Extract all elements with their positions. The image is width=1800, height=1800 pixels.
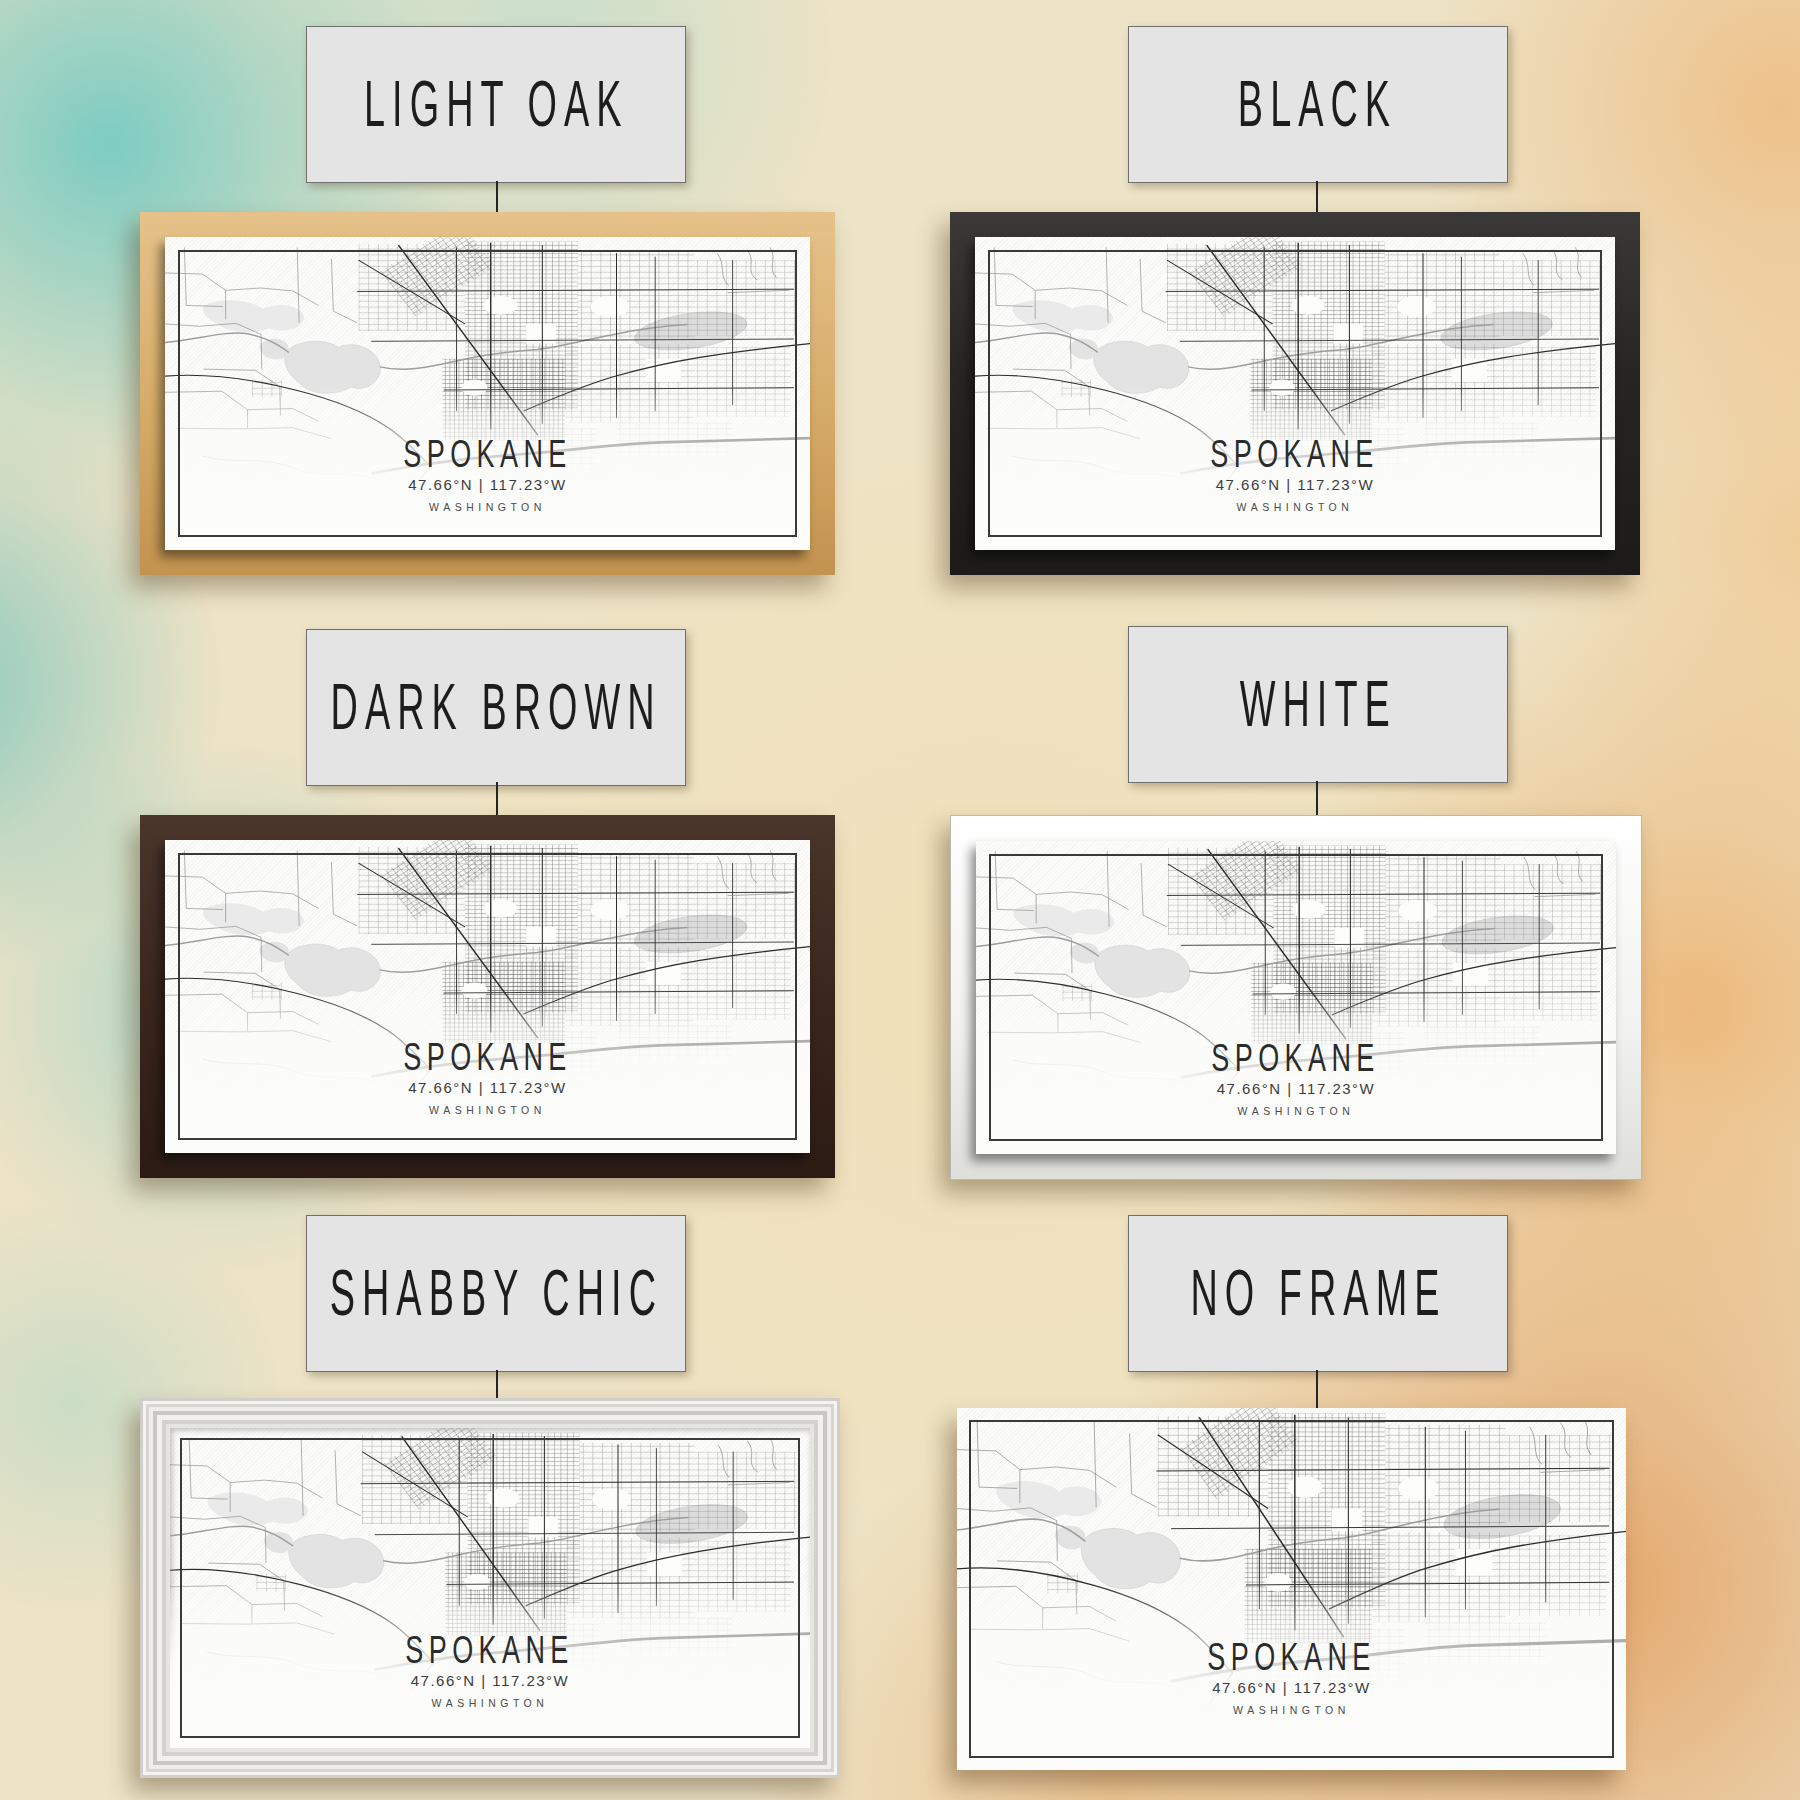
city-name: SPOKANE (403, 1036, 571, 1080)
map-canvas: SPOKANE 47.66°N | 117.23°W WASHINGTON (957, 1408, 1626, 1770)
map-canvas: SPOKANE 47.66°N | 117.23°W WASHINGTON (165, 840, 810, 1153)
connector-line (1316, 1370, 1318, 1408)
unframed-print: SPOKANE 47.66°N | 117.23°W WASHINGTON (957, 1408, 1626, 1770)
connector-line (1316, 781, 1318, 815)
framed-print-shabby-chic: SPOKANE 47.66°N | 117.23°W WASHINGTON (140, 1398, 840, 1778)
option-label-text: NO FRAME (1190, 1257, 1446, 1331)
state-name: WASHINGTON (975, 501, 1615, 513)
city-name: SPOKANE (1207, 1635, 1375, 1679)
city-coordinates: 47.66°N | 117.23°W (976, 1080, 1616, 1097)
option-label-black: BLACK (1128, 26, 1508, 183)
city-name: SPOKANE (1211, 433, 1379, 477)
city-name: SPOKANE (403, 433, 571, 477)
connector-line (496, 181, 498, 212)
option-label-no-frame: NO FRAME (1128, 1215, 1508, 1372)
map-caption: SPOKANE 47.66°N | 117.23°W WASHINGTON (165, 1040, 810, 1116)
option-label-text: LIGHT OAK (364, 68, 629, 142)
watercolor-wall: LIGHT OAK SPOKANE 47.66°N | 117.23°W WAS… (0, 0, 1800, 1800)
map-caption: SPOKANE 47.66°N | 117.23°W WASHINGTON (957, 1640, 1626, 1716)
city-map-image (957, 1408, 1626, 1770)
option-label-text: SHABBY CHIC (329, 1257, 662, 1331)
option-label-text: WHITE (1239, 668, 1396, 742)
map-caption: SPOKANE 47.66°N | 117.23°W WASHINGTON (165, 437, 810, 513)
city-coordinates: 47.66°N | 117.23°W (165, 476, 810, 493)
connector-line (496, 1370, 498, 1400)
option-label-white: WHITE (1128, 626, 1508, 783)
map-canvas: SPOKANE 47.66°N | 117.23°W WASHINGTON (976, 841, 1616, 1154)
map-caption: SPOKANE 47.66°N | 117.23°W WASHINGTON (976, 1041, 1616, 1117)
map-canvas: SPOKANE 47.66°N | 117.23°W WASHINGTON (165, 237, 810, 550)
map-caption: SPOKANE 47.66°N | 117.23°W WASHINGTON (170, 1633, 810, 1709)
option-label-text: DARK BROWN (330, 671, 661, 745)
city-name: SPOKANE (406, 1628, 574, 1672)
state-name: WASHINGTON (957, 1704, 1626, 1716)
city-coordinates: 47.66°N | 117.23°W (957, 1679, 1626, 1696)
framed-print-black: SPOKANE 47.66°N | 117.23°W WASHINGTON (950, 212, 1640, 575)
framed-print-white: SPOKANE 47.66°N | 117.23°W WASHINGTON (950, 815, 1642, 1180)
state-name: WASHINGTON (976, 1105, 1616, 1117)
option-label-light-oak: LIGHT OAK (306, 26, 686, 183)
city-coordinates: 47.66°N | 117.23°W (975, 476, 1615, 493)
framed-print-light-oak: SPOKANE 47.66°N | 117.23°W WASHINGTON (140, 212, 835, 575)
connector-line (1316, 181, 1318, 212)
state-name: WASHINGTON (170, 1697, 810, 1709)
map-canvas: SPOKANE 47.66°N | 117.23°W WASHINGTON (170, 1428, 810, 1748)
option-label-text: BLACK (1238, 68, 1397, 142)
connector-line (496, 782, 498, 815)
state-name: WASHINGTON (165, 501, 810, 513)
city-coordinates: 47.66°N | 117.23°W (165, 1079, 810, 1096)
state-name: WASHINGTON (165, 1104, 810, 1116)
map-caption: SPOKANE 47.66°N | 117.23°W WASHINGTON (975, 437, 1615, 513)
option-label-shabby-chic: SHABBY CHIC (306, 1215, 686, 1372)
option-label-dark-brown: DARK BROWN (306, 629, 686, 786)
map-canvas: SPOKANE 47.66°N | 117.23°W WASHINGTON (975, 237, 1615, 550)
city-name: SPOKANE (1212, 1037, 1380, 1081)
city-coordinates: 47.66°N | 117.23°W (170, 1672, 810, 1689)
framed-print-dark-brown: SPOKANE 47.66°N | 117.23°W WASHINGTON (140, 815, 835, 1178)
